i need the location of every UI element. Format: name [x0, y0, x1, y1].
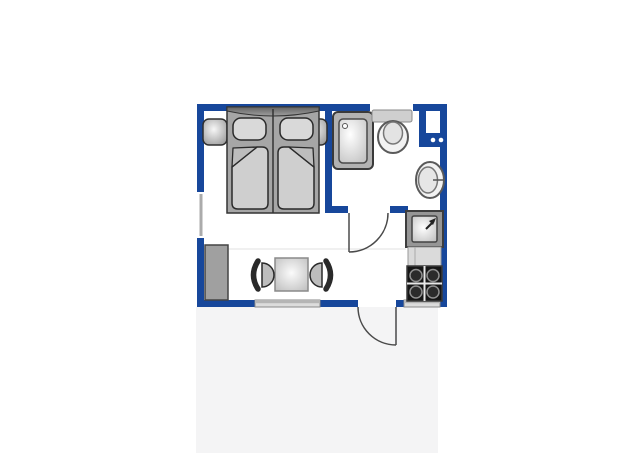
- double-bed: [227, 107, 319, 213]
- window-left-mullion: [200, 194, 203, 236]
- wall-bathroom-bottom-left: [325, 206, 348, 213]
- chair-right-backrest: [326, 261, 331, 289]
- burner: [410, 286, 422, 298]
- wall-niche-vertical-stub: [419, 111, 426, 147]
- bathroom: [333, 110, 444, 198]
- chair-left-seat: [262, 263, 274, 287]
- floor-plan-canvas: [0, 0, 640, 453]
- chair-left: [254, 261, 275, 289]
- niche-dot-right: [439, 138, 444, 143]
- floor-plan-drawing: [0, 0, 640, 453]
- chair-left-backrest: [254, 261, 259, 289]
- kitchen-counter: [408, 247, 441, 266]
- interior-door-bathroom: [349, 213, 388, 252]
- toilet: [378, 121, 408, 153]
- living-area: [205, 245, 331, 300]
- wall-bedroom-bathroom-divider: [325, 104, 332, 213]
- chair-right-seat: [310, 263, 322, 287]
- shower-drain: [343, 124, 348, 129]
- burner: [427, 286, 439, 298]
- burner: [410, 270, 422, 282]
- wall-bottom-segment-2: [320, 300, 358, 307]
- wall-bottom-segment-3: [396, 300, 404, 307]
- wall-left-upper-segment: [197, 104, 204, 192]
- wash-basin: [416, 162, 444, 198]
- chair-right: [310, 261, 331, 289]
- pillow-left: [233, 118, 266, 140]
- wall-left-lower-segment: [197, 238, 204, 307]
- niche-dot-left: [431, 138, 436, 143]
- dining-table: [275, 258, 308, 291]
- window-living-bottom: [255, 300, 320, 307]
- burner: [427, 270, 439, 282]
- kitchen-sink: [406, 211, 443, 247]
- bedroom: [203, 107, 327, 213]
- wall-bottom-segment-1: [197, 300, 255, 307]
- interior-door-swing-arc: [349, 213, 388, 252]
- wall-niche-horizontal-stub: [426, 133, 447, 147]
- shower: [333, 112, 373, 169]
- pillow-right: [280, 118, 313, 140]
- page-lower-grey-panel: [196, 307, 438, 453]
- wardrobe: [205, 245, 228, 300]
- stove: [407, 266, 442, 301]
- kitchenette: [406, 211, 443, 301]
- nightstand-left: [203, 119, 227, 145]
